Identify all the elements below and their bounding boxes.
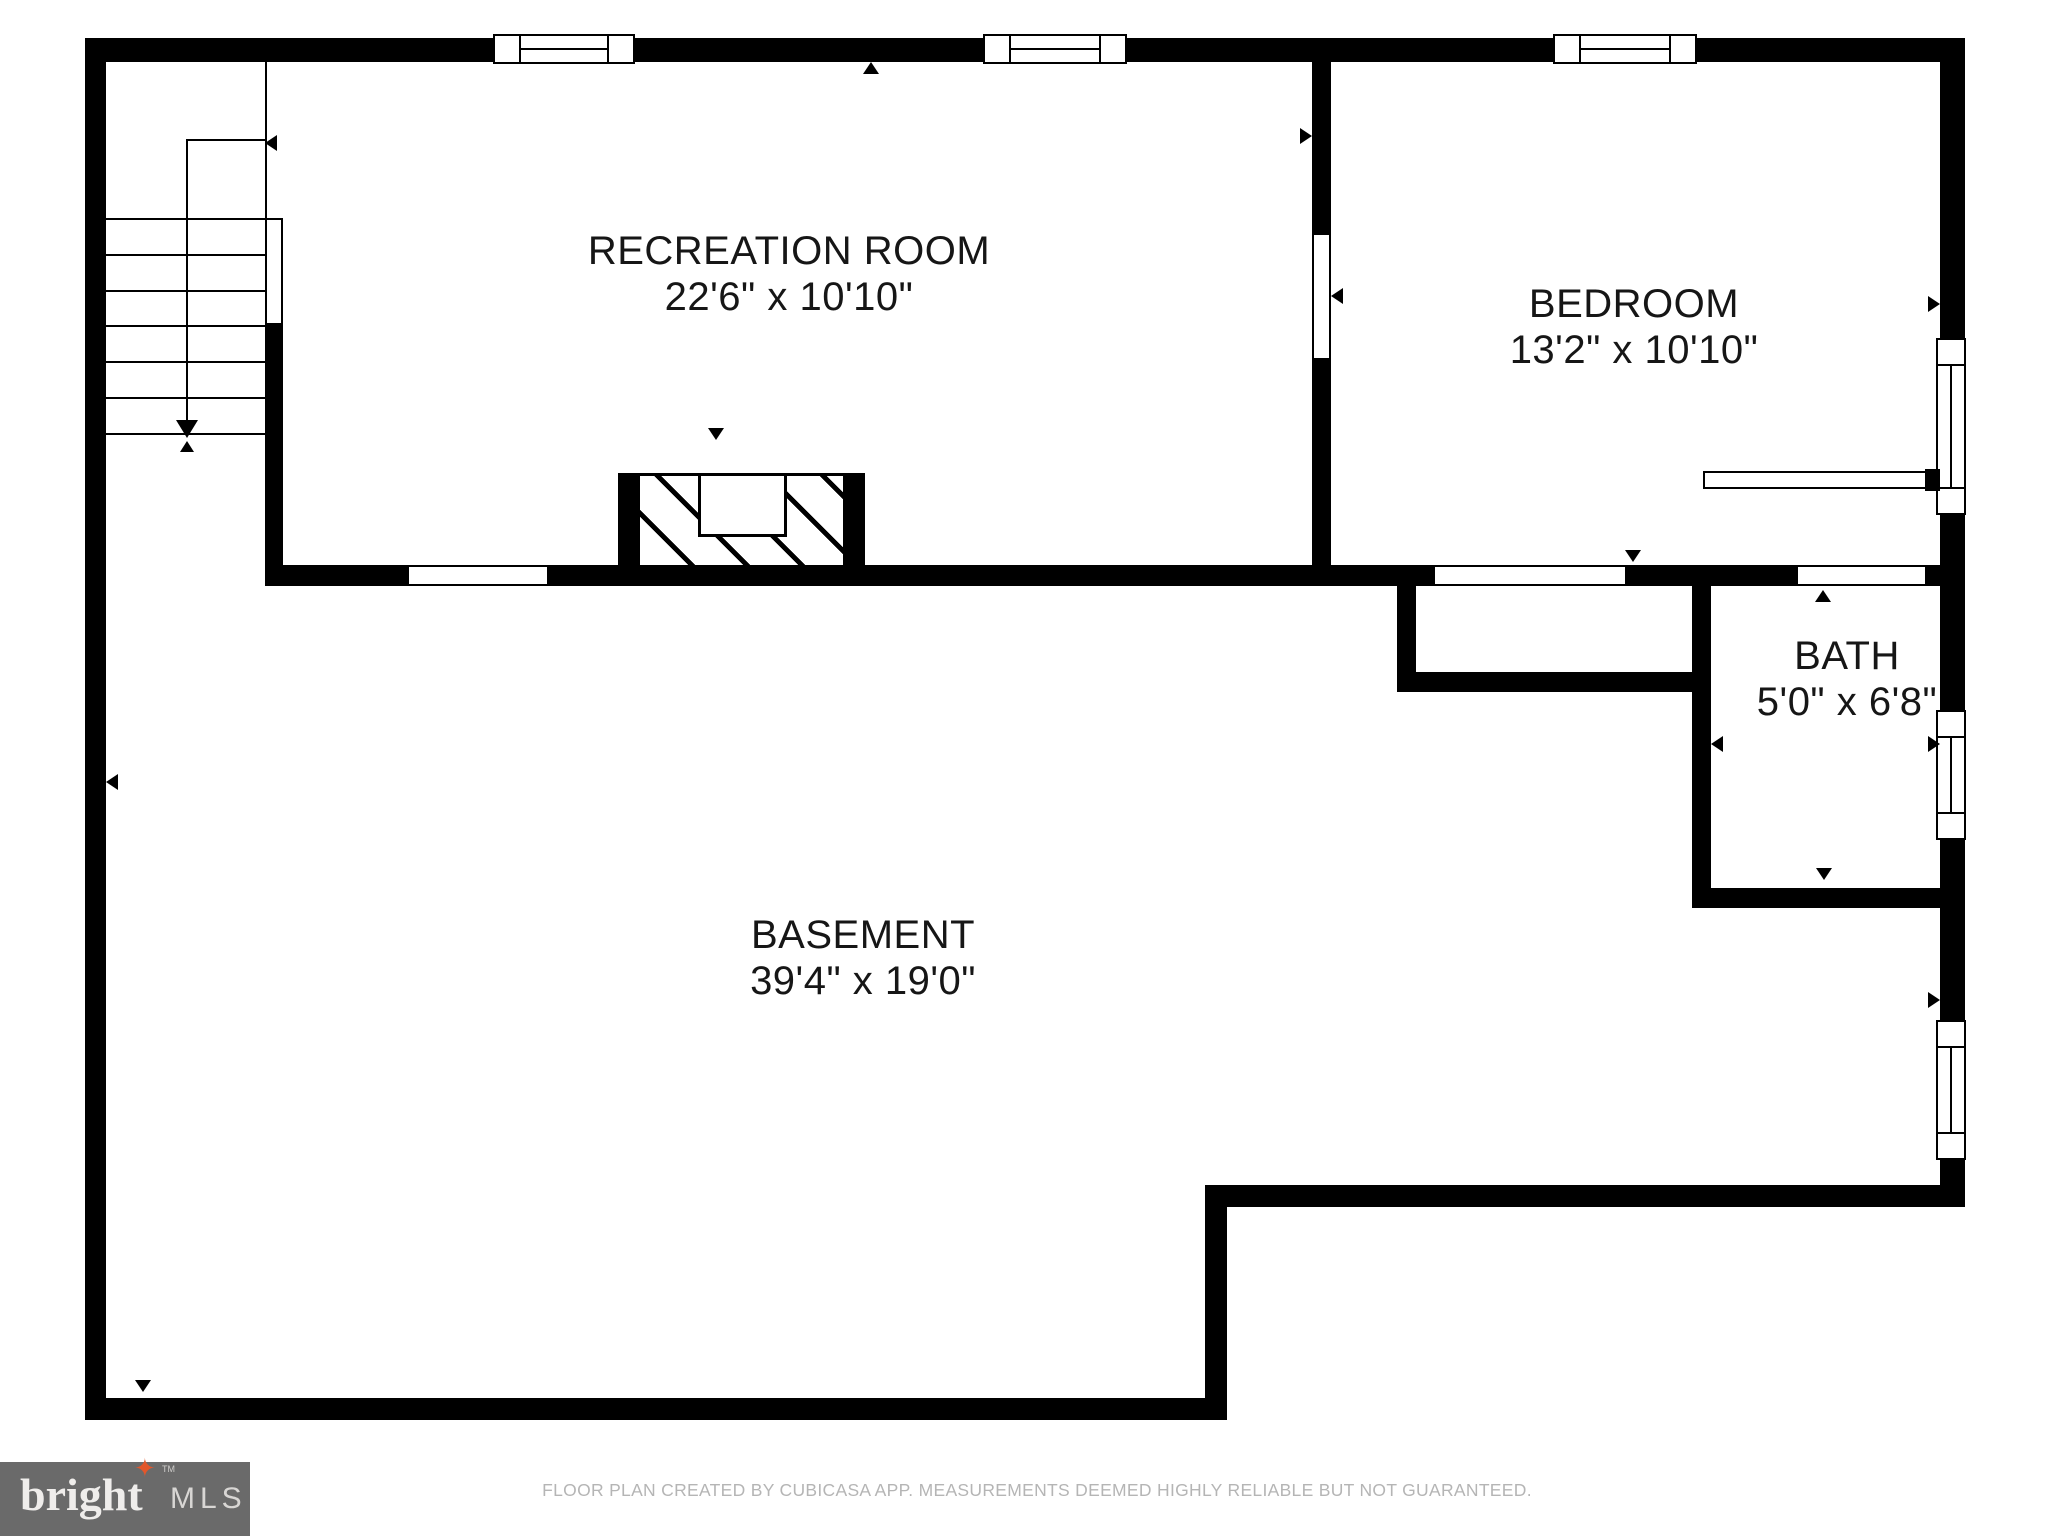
opening-bedroom-closet [1435,565,1625,586]
window-frame [1011,48,1099,50]
window-top-1 [493,34,635,64]
wall-divider-lower [1312,358,1331,586]
window-frame [1581,48,1669,50]
window-frame [1950,738,1952,812]
fireplace-left-post [618,473,640,586]
window-right-bedroom [1936,338,1966,515]
wall-marker [106,774,118,790]
wall-marker [1928,296,1940,312]
wall-divider-upper [1312,62,1331,235]
stairs-down-arrow [176,420,198,438]
brightmls-logo: bright ✦ TM MLS [0,1462,250,1536]
window-frame [521,48,607,50]
wall-bath-bottom [1692,888,1965,908]
window-top-2 [983,34,1127,64]
opening-bedroom-door [1312,235,1331,358]
window-frame [1938,812,1964,814]
window-frame [1950,1048,1952,1132]
wall-left [85,38,106,1420]
wall-marker [1300,128,1312,144]
window-right-bath [1936,710,1966,840]
wall-bottom-left [85,1398,1227,1420]
wall-marker [1331,288,1343,304]
wall-stairs-side [265,325,283,586]
fireplace-firebox [698,473,787,537]
window-right-basement [1936,1020,1966,1160]
brightmls-logo-suffix: MLS [170,1482,247,1516]
wall-marker [1711,736,1723,752]
wall-marker [1815,590,1831,602]
wall-marker [708,428,724,440]
window-frame [1950,366,1952,487]
window-frame [1938,487,1964,489]
room-name: RECREATION ROOM [588,228,990,274]
wall-marker [863,62,879,74]
wall-step-vertical [1205,1185,1227,1420]
wall-marker [1625,550,1641,562]
room-dims: 5'0" x 6'8" [1757,679,1937,725]
wall-marker [1928,992,1940,1008]
stairs-up-arrow [180,441,194,452]
floor-plan: RECREATION ROOM 22'6" x 10'10" BEDROOM 1… [0,0,2048,1536]
wall-marker [1816,868,1832,880]
room-name: BASEMENT [750,912,976,958]
window-top-3 [1553,34,1697,64]
stairs-direction-line-h [187,139,265,141]
wall-marker [1928,736,1940,752]
bedroom-pony-wall [1703,471,1927,489]
star-icon: ✦ [134,1454,156,1484]
wall-marker [135,1380,151,1392]
opening-bath-door [1798,565,1925,586]
stairs-railing [265,218,283,325]
stairs-direction-line-v [186,139,188,420]
wall-bath-left [1692,586,1711,908]
room-label-recreation: RECREATION ROOM 22'6" x 10'10" [588,228,990,320]
window-frame [1669,36,1671,62]
bedroom-pony-wall-post [1925,469,1940,491]
window-frame [1938,1132,1964,1134]
room-label-basement: BASEMENT 39'4" x 19'0" [750,912,976,1004]
window-frame [1099,36,1101,62]
wall-closet-bottom [1397,672,1710,692]
brightmls-logo-brand: bright [20,1468,143,1521]
room-dims: 39'4" x 19'0" [750,958,976,1004]
room-name: BATH [1757,633,1937,679]
room-label-bedroom: BEDROOM 13'2" x 10'10" [1510,281,1759,373]
fireplace-right-post [843,473,865,586]
room-label-bath: BATH 5'0" x 6'8" [1757,633,1937,725]
wall-marker [265,135,277,151]
trademark-symbol: TM [162,1464,175,1474]
wall-bottom-right [1225,1185,1965,1207]
opening-recroom-basement [409,565,547,586]
room-dims: 13'2" x 10'10" [1510,327,1759,373]
room-dims: 22'6" x 10'10" [588,274,990,320]
window-frame [607,36,609,62]
room-name: BEDROOM [1510,281,1759,327]
floor-plan-disclaimer: FLOOR PLAN CREATED BY CUBICASA APP. MEAS… [542,1480,1532,1501]
